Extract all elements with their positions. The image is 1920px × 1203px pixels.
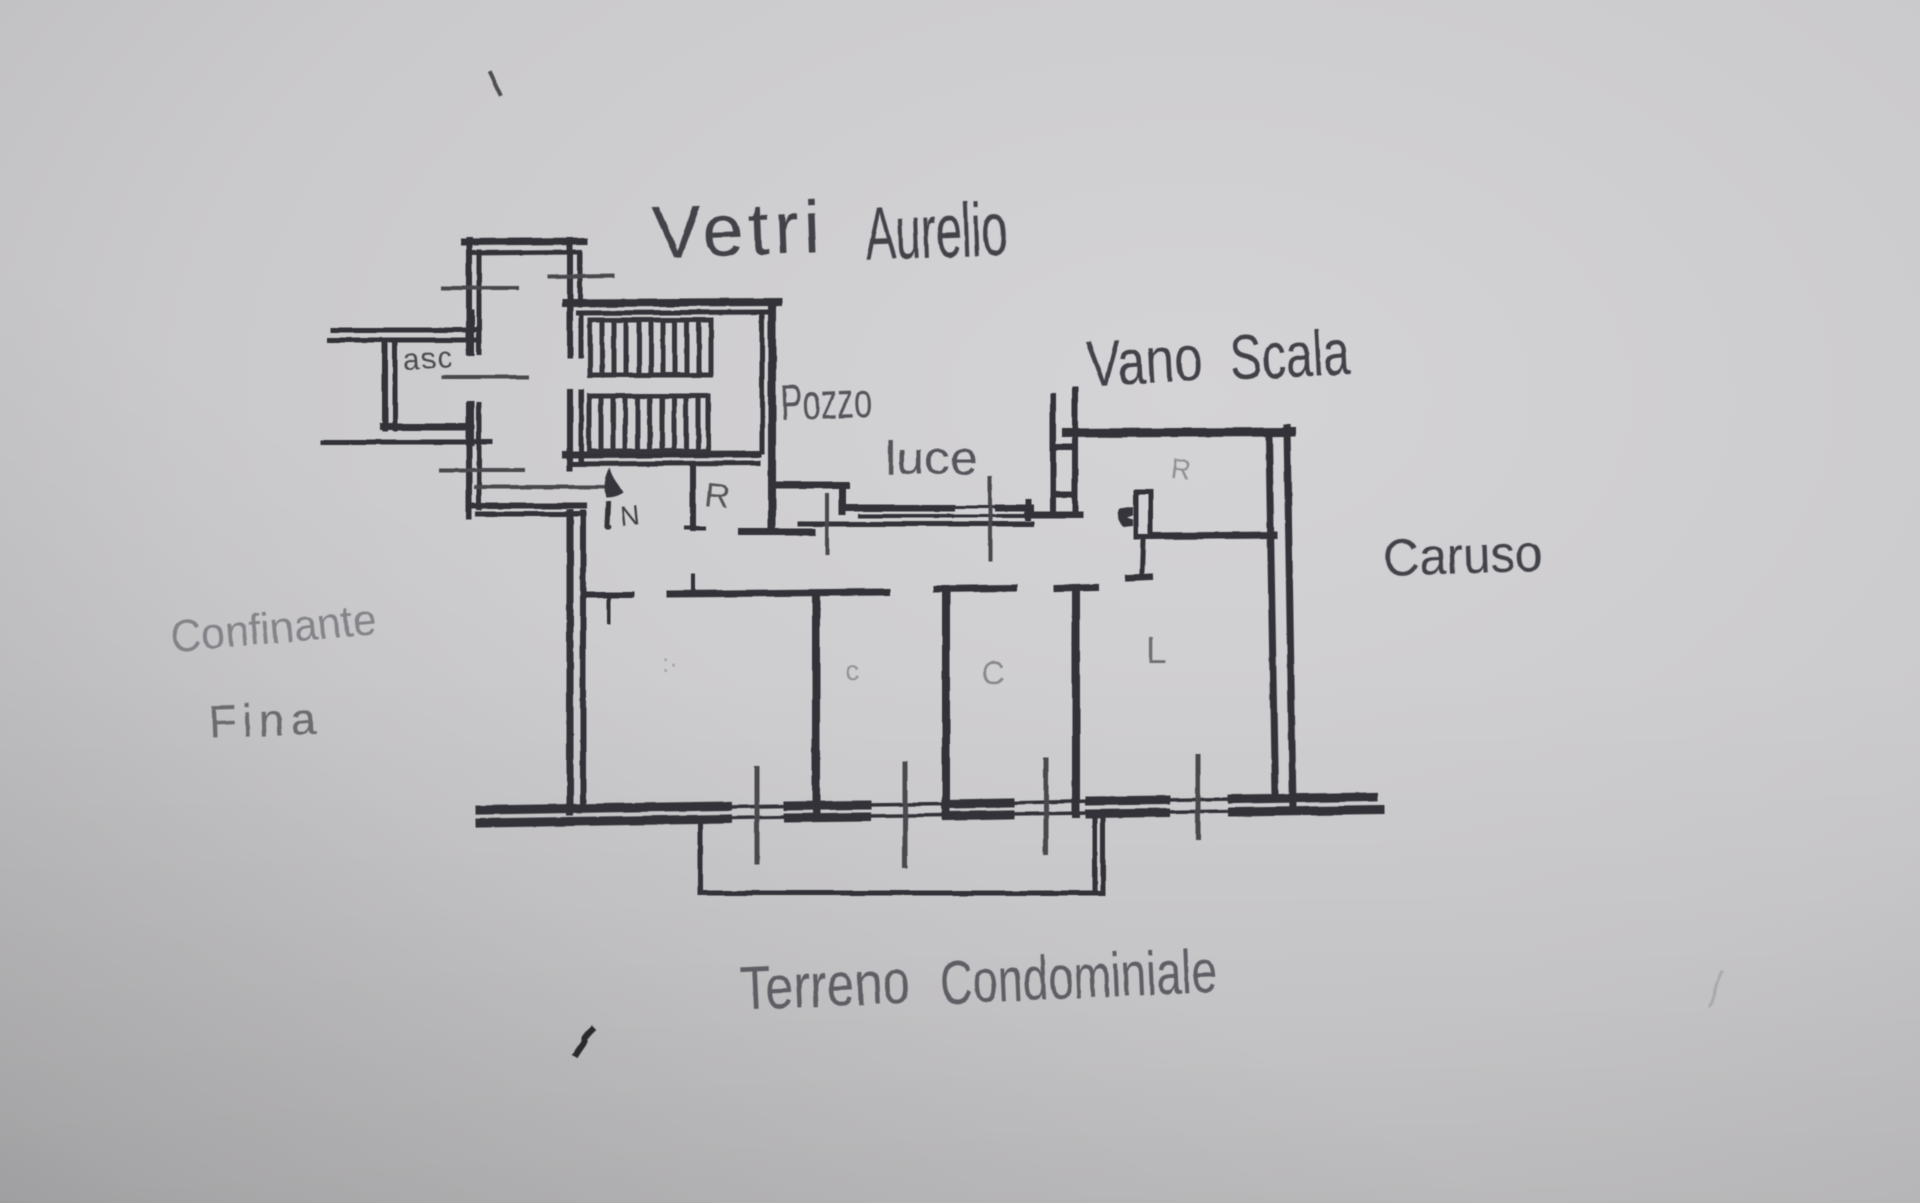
svg-text:c: c [845, 655, 859, 686]
svg-text:R: R [1169, 452, 1193, 486]
svg-text:R: R [703, 476, 731, 516]
svg-text:Vetri: Vetri [651, 185, 827, 274]
svg-text:luce: luce [885, 433, 978, 484]
svg-text:Aurelio: Aurelio [864, 187, 1009, 277]
svg-text:C: C [982, 655, 1005, 691]
svg-text:Caruso: Caruso [1382, 523, 1543, 587]
svg-text:Vano: Vano [1085, 324, 1204, 401]
svg-text:L: L [1146, 630, 1166, 671]
svg-text:Condominiale: Condominiale [939, 936, 1218, 1018]
svg-text:Terreno: Terreno [739, 947, 912, 1024]
svg-text::·: :· [662, 648, 678, 678]
svg-text:asc: asc [402, 341, 454, 377]
svg-text:Pozzo: Pozzo [779, 372, 873, 431]
svg-text:N: N [618, 500, 641, 532]
svg-text:Scala: Scala [1228, 316, 1352, 393]
svg-text:Fina: Fina [208, 692, 323, 748]
